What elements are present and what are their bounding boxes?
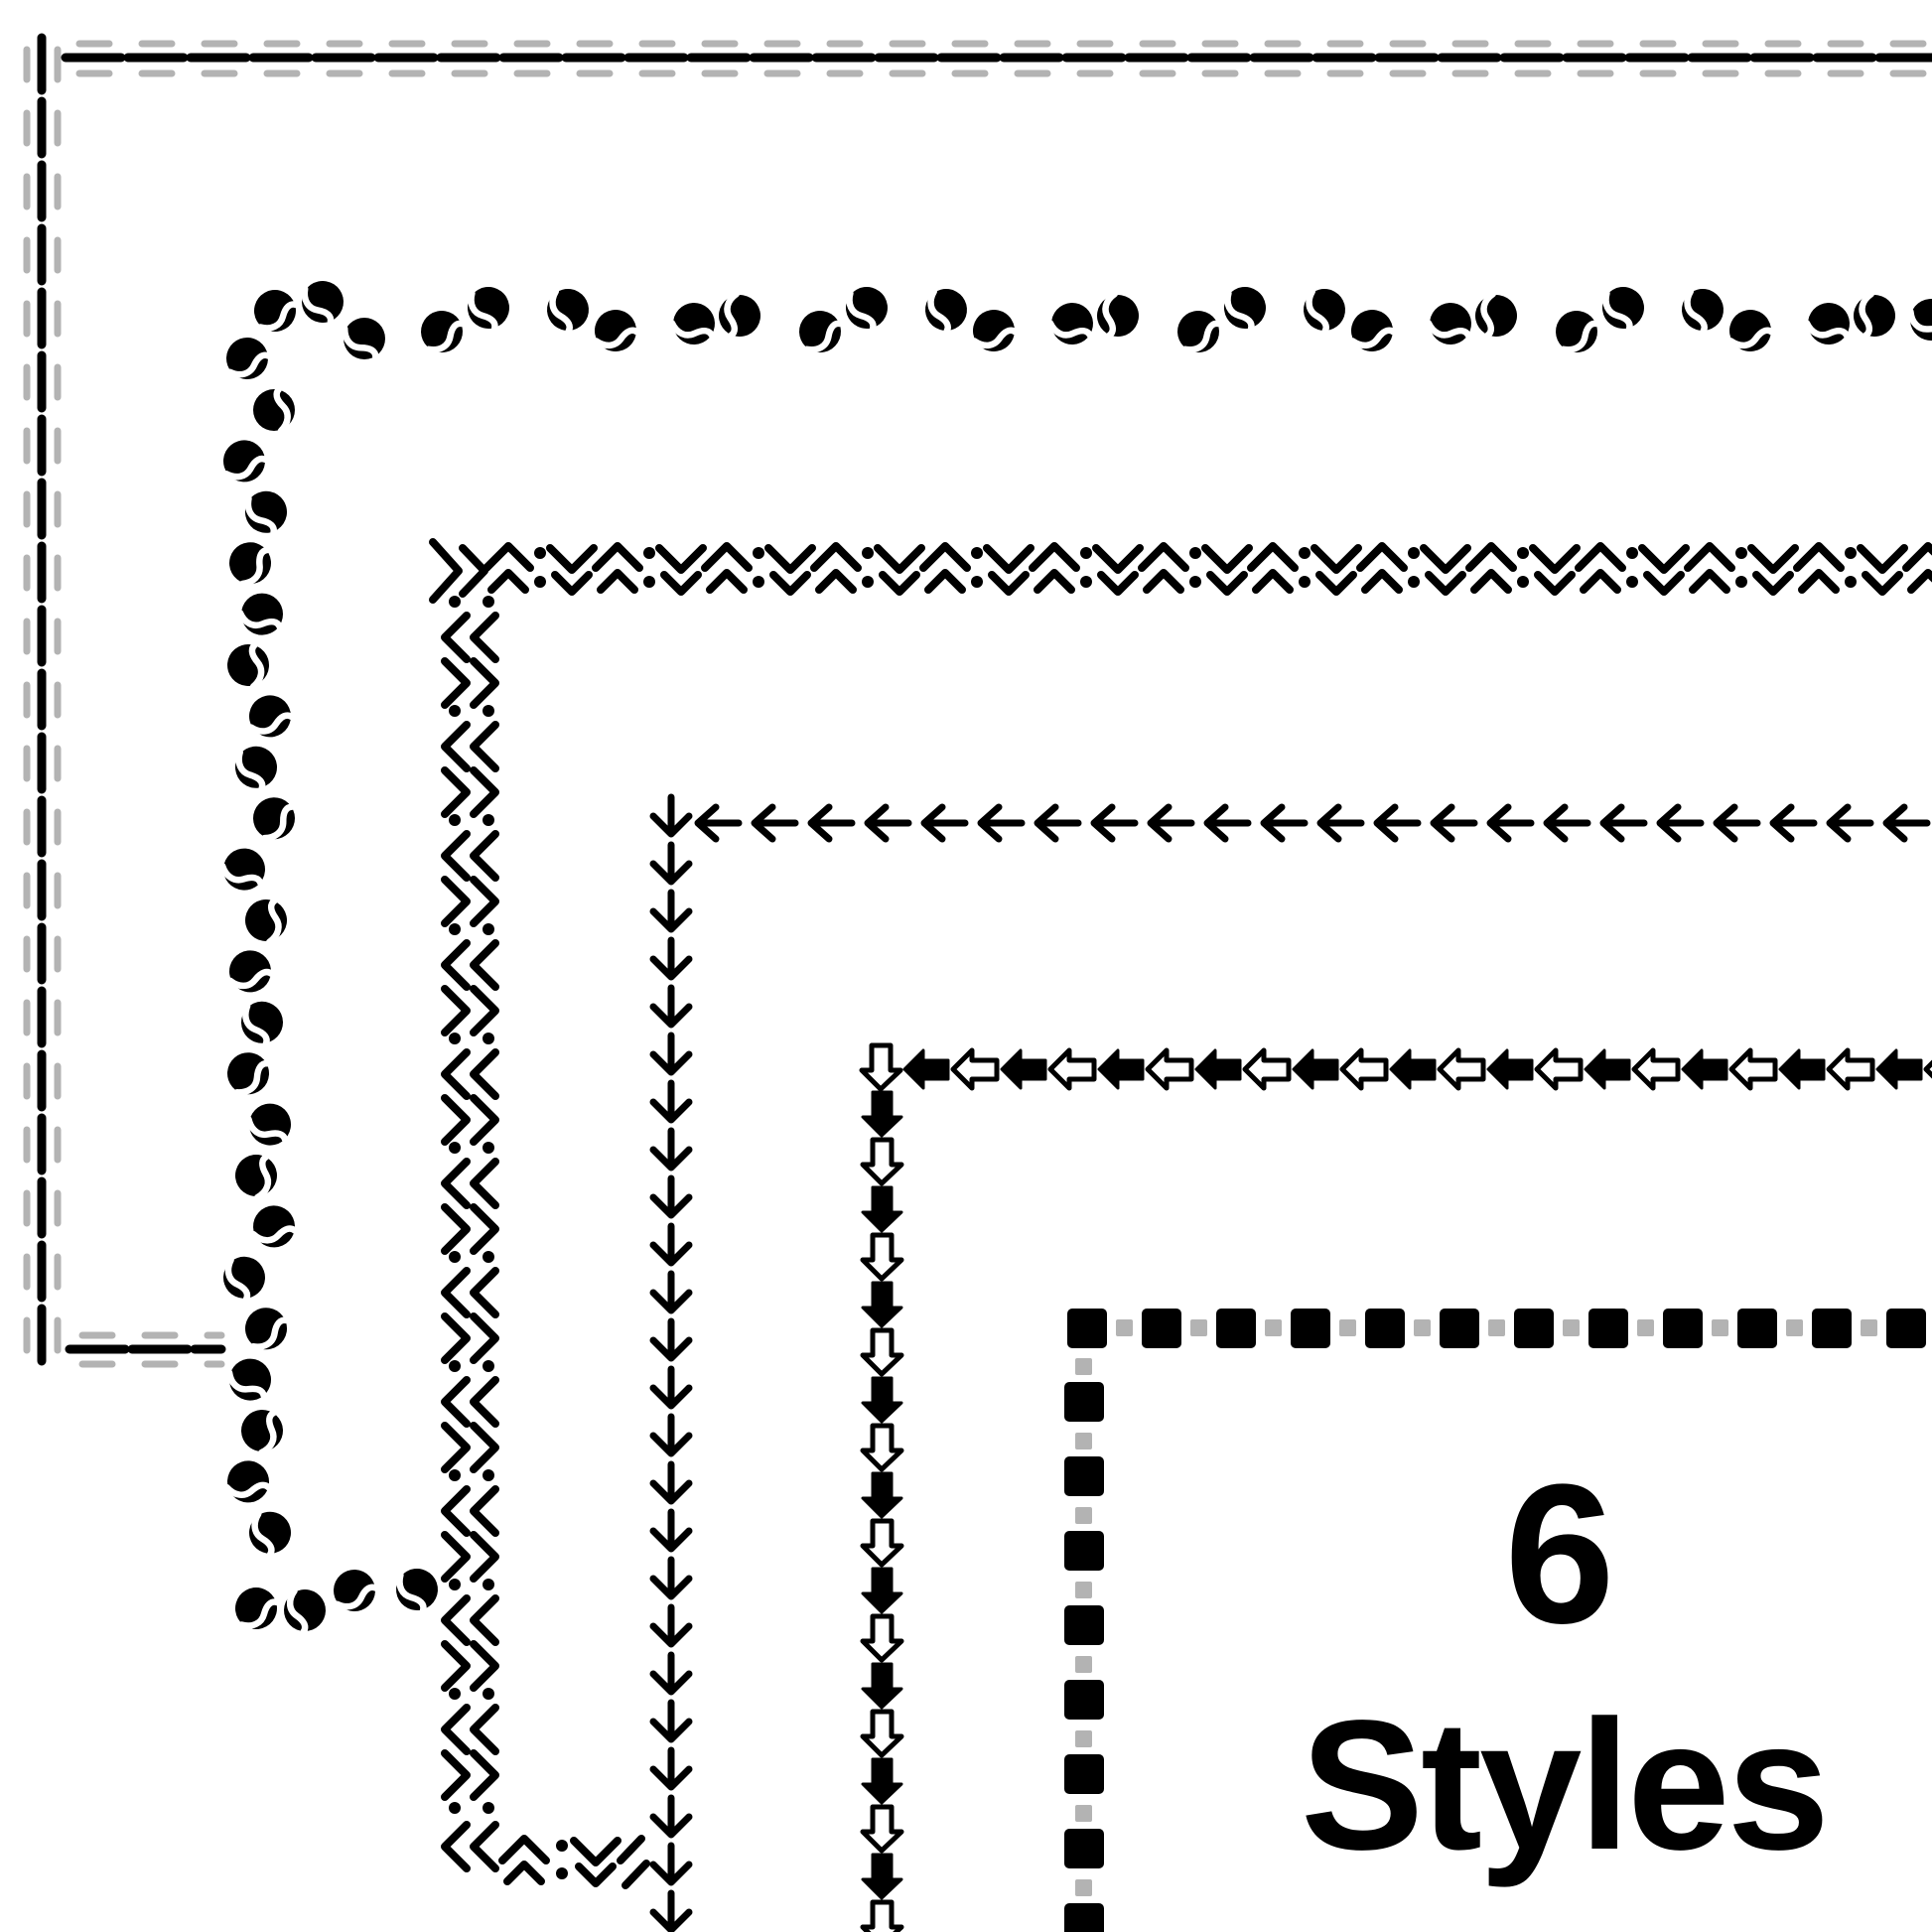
border-art [0, 0, 1932, 1932]
title-number: 6 [1504, 1455, 1614, 1654]
border-double-dash [27, 38, 1932, 1372]
title-word: Styles [1301, 1694, 1827, 1878]
border-coffee-beans [216, 273, 1932, 1637]
border-styles-preview: 6 Styles [0, 0, 1932, 1932]
